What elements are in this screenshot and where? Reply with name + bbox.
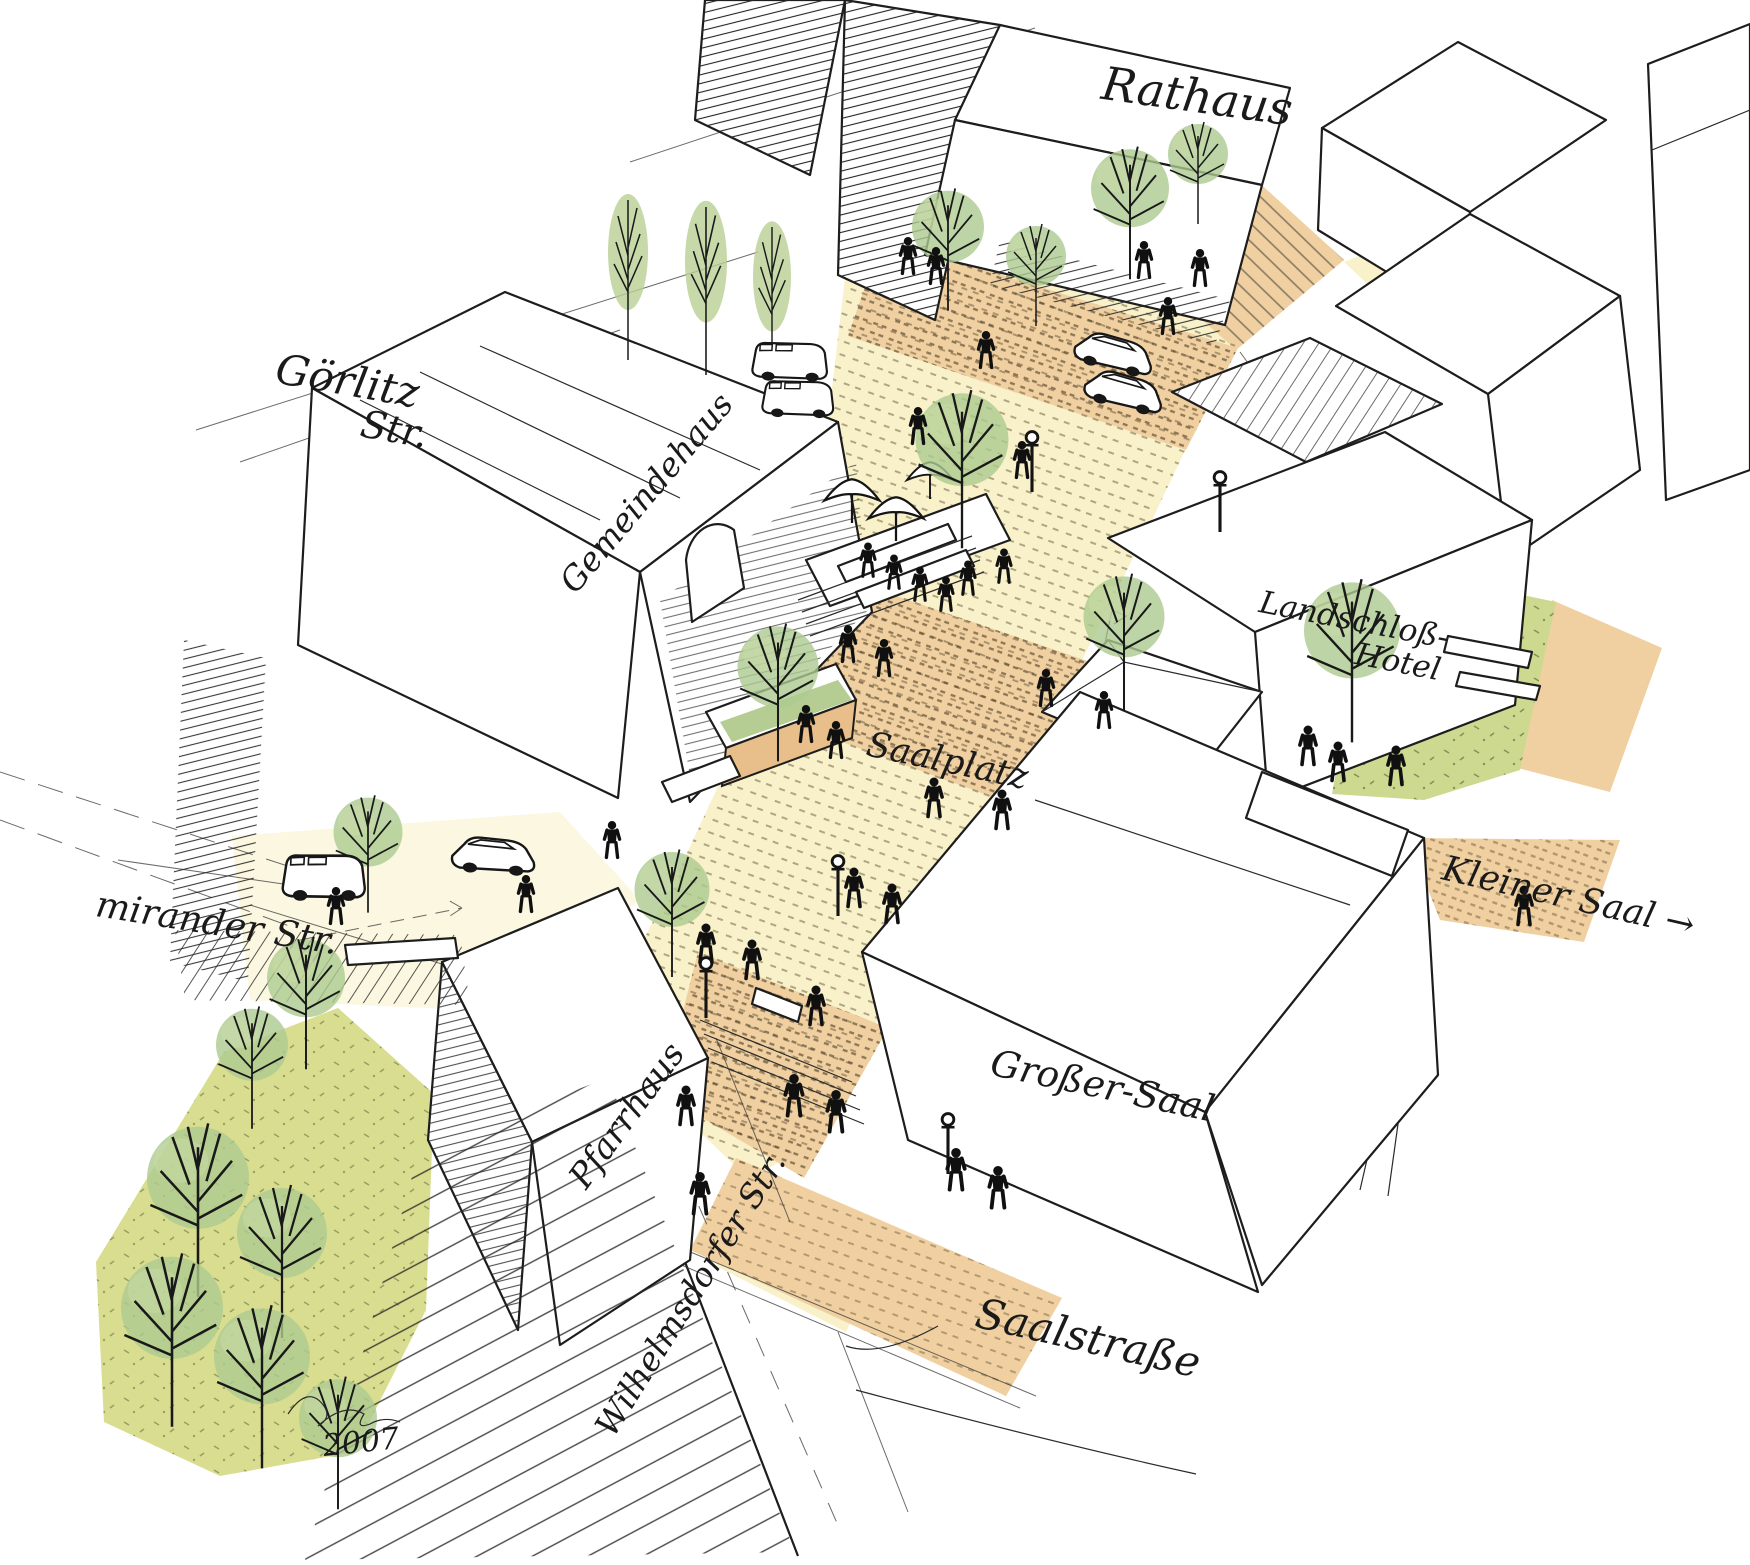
urban-design-sketch: Rathaus Görlitz Str. Gemeindehaus Landsc… — [0, 0, 1750, 1565]
wilhelmsdorfer-right-edge-2 — [838, 1332, 908, 1512]
van — [282, 853, 366, 905]
topleft-hatched-block-hatch — [695, 0, 845, 175]
van — [752, 340, 829, 385]
poplar-tree — [685, 201, 727, 375]
van — [762, 379, 835, 421]
saalstrasse-underline — [856, 1390, 1196, 1474]
far-right-wall — [1648, 24, 1750, 500]
sketch-canvas: Rathaus Görlitz Str. Gemeindehaus Landsc… — [0, 0, 1750, 1565]
person-figure — [604, 821, 619, 857]
rathaus-building — [838, 0, 1290, 345]
